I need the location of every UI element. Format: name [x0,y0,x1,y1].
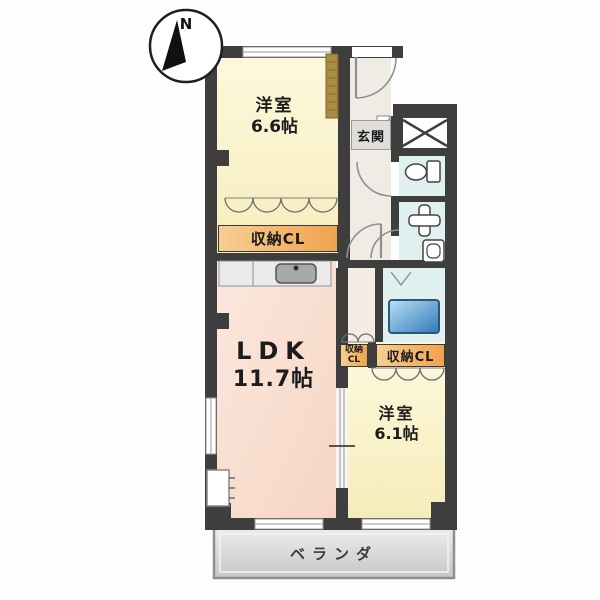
floor-plan-drawing [0,0,600,600]
pipe-shaft-icon [399,114,451,152]
north-label: N [171,15,201,33]
bedroom-top-name: 洋室 [211,96,338,117]
bathtub-icon [389,300,439,333]
bedroom-bottom-label: 洋室 6.1帖 [348,404,445,444]
ldk-label: LDK 11.7帖 [211,336,336,394]
bedroom-top-closet-label: 収納CL [218,225,338,252]
entrance-label: 玄関 [351,120,391,150]
bedroom-top-label: 洋室 6.6帖 [211,96,338,139]
veranda-label: ベランダ [214,528,454,578]
kitchen-counter [219,261,331,286]
bedroom-bottom-size: 6.1帖 [348,424,445,444]
bedroom-bottom-name: 洋室 [348,404,445,424]
inner-corridor [348,268,375,342]
hall-closet-label: 収納 CL [340,344,368,367]
floor-plan-canvas: N 洋室 6.6帖 玄関 収納CL 収納 CL 収納CL LDK 11.7帖 洋… [0,0,600,600]
bedroom-bottom-closet-label: 収納CL [376,344,445,367]
ldk-name: LDK [211,336,336,366]
pipe-space-box [207,470,229,506]
washing-machine-icon [423,240,444,262]
ldk-size: 11.7帖 [211,366,336,394]
bedroom-top-size: 6.6帖 [211,117,338,138]
entrance-opening [352,47,392,57]
